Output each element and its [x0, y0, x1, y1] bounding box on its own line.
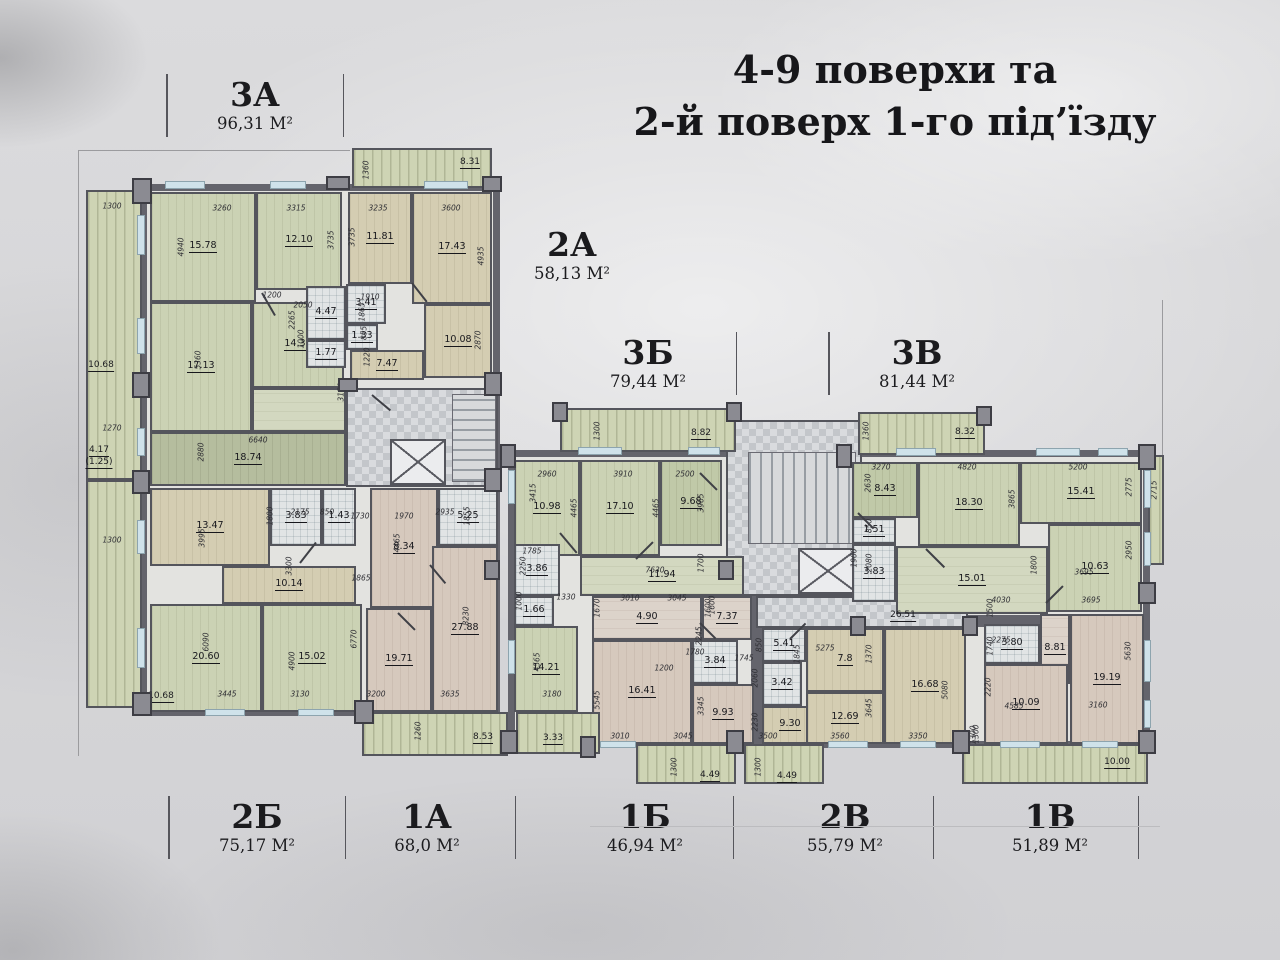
area-annotation: 10.00 — [1104, 757, 1130, 769]
area-annotation: 8.82 — [691, 428, 711, 440]
structural-column — [500, 730, 518, 754]
room: 16.41 — [592, 640, 692, 744]
dimension-label: 2220 — [984, 677, 993, 696]
structural-column — [850, 616, 866, 636]
structural-column — [726, 730, 744, 754]
dimension-label: 2870 — [474, 330, 483, 349]
area-annotation: 26.51 — [890, 610, 916, 622]
window — [508, 640, 515, 674]
dimension-label: 6770 — [350, 629, 359, 648]
area-annotation: 4.49 — [777, 771, 797, 783]
elevator-shaft-left — [390, 439, 446, 485]
dimension-label: 3315 — [286, 204, 305, 213]
dimension-label: 3300 — [285, 556, 294, 575]
dimension-label: 2950 — [1125, 540, 1134, 559]
dimension-label: 3965 — [697, 493, 706, 512]
window — [1098, 448, 1128, 456]
window — [688, 447, 720, 455]
dimension-label: 3695 — [1081, 596, 1100, 605]
dimension-label: 4900 — [288, 651, 297, 670]
dimension-label: 5545 — [593, 690, 602, 709]
dimension-label: 3445 — [217, 690, 236, 699]
room-area-label: 1.77 — [315, 348, 336, 360]
room-area-label: 3.84 — [704, 656, 725, 668]
dimension-label: 2775 — [1125, 477, 1134, 496]
dimension-label: 3260 — [212, 204, 231, 213]
dimension-label: 1740 — [986, 636, 995, 655]
dimension-label: 850 — [320, 508, 334, 517]
room-area-label: 8.81 — [1044, 643, 1065, 655]
dimension-label: 3415 — [529, 483, 538, 502]
dimension-label: 3600 — [441, 204, 460, 213]
structural-column — [552, 402, 568, 422]
bathroom: 3.83 — [270, 488, 322, 546]
dimension-label: 1845 — [793, 644, 802, 663]
floor-plan-photo: 4-9 поверхи та 2-й поверх 1-го під’їзду … — [0, 0, 1280, 960]
room: 15.78 — [150, 192, 256, 302]
dimension-label: 3910 — [613, 470, 632, 479]
room-area-label: 9.93 — [712, 708, 733, 720]
window — [896, 448, 936, 456]
room-area-label: 15.41 — [1067, 487, 1094, 499]
room-area-label: 4.90 — [636, 612, 657, 624]
dimension-label: 2500 — [675, 470, 694, 479]
room-area-label: 19.19 — [1093, 673, 1120, 685]
room-area-label: 10.14 — [275, 579, 302, 591]
dimension-label: 4565 — [533, 652, 542, 671]
structural-column — [484, 468, 502, 492]
structural-column — [482, 176, 502, 192]
dimension-label: 4465 — [652, 498, 661, 517]
area-annotation: 8.32 — [955, 427, 975, 439]
room: 19.19 — [1070, 614, 1144, 744]
dimension-label: 1865 — [351, 574, 370, 583]
dimension-label: 4940 — [177, 237, 186, 256]
window — [1000, 741, 1040, 748]
balcony — [86, 190, 142, 480]
bathroom: 3.83 — [852, 544, 896, 602]
structural-column — [836, 444, 852, 468]
room: 8.34 — [370, 488, 438, 608]
room-area-label: 19.71 — [385, 654, 412, 666]
dimension-label: 5200 — [1068, 463, 1087, 472]
dimension-label: 3045 — [667, 594, 686, 603]
dimension-label: 5275 — [815, 644, 834, 653]
window — [1036, 448, 1080, 456]
dimension-label: 8230 — [462, 606, 471, 625]
window — [205, 709, 245, 716]
structural-column — [338, 378, 358, 392]
window — [578, 447, 622, 455]
dimension-label: 2060 — [751, 668, 760, 687]
window — [508, 470, 515, 504]
window — [1144, 640, 1151, 682]
structural-column — [976, 406, 992, 426]
dimension-label: 1910 — [360, 293, 379, 302]
room — [252, 388, 346, 432]
room-area-label: 12.69 — [831, 712, 858, 724]
window — [298, 709, 334, 716]
dimension-label: 1700 — [697, 553, 706, 572]
window — [270, 181, 306, 189]
room-area-label: 9.30 — [779, 719, 800, 731]
dimension-label: 4585 — [1004, 702, 1023, 711]
dimension-label: 3130 — [290, 690, 309, 699]
dimension-label: 3010 — [620, 594, 639, 603]
dimension-label: 2880 — [197, 442, 206, 461]
room: 16.68 — [884, 628, 966, 744]
area-annotation: 4.49 — [700, 770, 720, 782]
structural-column — [952, 730, 970, 754]
dimension-label: 3180 — [542, 690, 561, 699]
structural-column — [718, 560, 734, 580]
dimension-label: 1300 — [754, 757, 763, 776]
structural-column — [326, 176, 350, 190]
structural-column — [132, 178, 152, 204]
room-area-label: 8.43 — [874, 484, 895, 496]
dimension-label: 1800 — [266, 506, 275, 525]
structural-column — [484, 560, 500, 580]
dimension-label: 4820 — [957, 463, 976, 472]
dimension-label: 3645 — [865, 698, 874, 717]
dimension-label: 3635 — [440, 690, 459, 699]
boundary-line — [78, 150, 350, 151]
bathroom: 3.42 — [762, 662, 802, 706]
room: 10.09 — [984, 664, 1068, 744]
dimension-label: 2960 — [537, 470, 556, 479]
dimension-label: 1300 — [670, 757, 679, 776]
dimension-label: 2630 — [864, 473, 873, 492]
dimension-label: 2250 — [519, 556, 528, 575]
area-annotation: 4.17 — [89, 445, 109, 457]
room: 15.02 — [262, 604, 362, 712]
dimension-label: 6090 — [202, 632, 211, 651]
dimension-label: 1300 — [102, 536, 121, 545]
dimension-label: 2265 — [288, 310, 297, 329]
balcony — [86, 480, 142, 708]
dimension-label: 3345 — [697, 696, 706, 715]
dimension-label: 1000 — [515, 591, 524, 610]
dimension-label: 1855 — [463, 506, 472, 525]
room-area-label: 4.47 — [315, 307, 336, 319]
dimension-label: 3735 — [348, 227, 357, 246]
dimension-label: 4465 — [393, 533, 402, 552]
dimension-label: 1200 — [654, 664, 673, 673]
room-area-label: 18.30 — [955, 498, 982, 510]
structural-column — [500, 444, 516, 468]
room-area-label: 17.10 — [606, 502, 633, 514]
dimension-label: 5630 — [1124, 641, 1133, 660]
window — [137, 520, 145, 554]
structural-column — [962, 616, 978, 636]
dimension-label: 855 — [360, 326, 369, 340]
dimension-label: 1600 — [708, 595, 717, 614]
dimension-label: 4465 — [570, 498, 579, 517]
room-area-label: 20.60 — [192, 652, 219, 664]
room-area-label: 7.8 — [837, 654, 852, 666]
dimension-label: 3695 — [1074, 568, 1093, 577]
dimension-label: 1000 — [297, 329, 306, 348]
room-area-label: 15.02 — [298, 652, 325, 664]
dimension-label: 1500 — [986, 598, 995, 617]
room-area-label: 1.66 — [523, 605, 544, 617]
dimension-label: 3500 — [758, 732, 777, 741]
dimension-label: 5360 — [194, 350, 203, 369]
bathroom: 4.47 — [306, 286, 346, 340]
dimension-label: 3995 — [198, 528, 207, 547]
room: 15.01 — [896, 546, 1048, 614]
dimension-label: 1800 — [1030, 555, 1039, 574]
dimension-label: 4935 — [477, 246, 486, 265]
room: 7.47 — [350, 350, 424, 380]
room-area-label: 11.81 — [366, 232, 393, 244]
room-area-label: 3.86 — [526, 564, 547, 576]
dimension-label: 2935 — [435, 508, 454, 517]
room: 13.47 — [150, 488, 270, 566]
window — [1144, 470, 1151, 508]
room-area-label: 15.78 — [189, 241, 216, 253]
area-annotation: 8.53 — [473, 732, 493, 744]
dimension-label: 3560 — [830, 732, 849, 741]
window — [137, 428, 145, 456]
area-annotation: 10.68 — [88, 360, 114, 372]
structural-column — [354, 700, 374, 724]
window — [1144, 532, 1151, 566]
dimension-label: 3350 — [908, 732, 927, 741]
room-area-label: 16.41 — [628, 686, 655, 698]
dimension-label: 1900 — [850, 548, 859, 567]
dimension-label: 1300 — [593, 421, 602, 440]
room-area-label: 17.43 — [438, 242, 465, 254]
dimension-label: 3735 — [327, 230, 336, 249]
dimension-label: 3865 — [1008, 489, 1017, 508]
structural-column — [1138, 444, 1156, 470]
paper-crease — [590, 826, 1160, 827]
dimension-label: 6640 — [248, 436, 267, 445]
bathroom: 1.51 — [852, 518, 896, 544]
dimension-label: 1670 — [593, 598, 602, 617]
room-area-label: 7.37 — [716, 612, 737, 624]
room: 4.90 — [592, 596, 702, 640]
structural-column — [484, 372, 502, 396]
dimension-label: 1270 — [102, 424, 121, 433]
room-area-label: 3.42 — [771, 678, 792, 690]
area-annotation: (1.25) — [85, 457, 112, 469]
dimension-label: 3200 — [366, 690, 385, 699]
room-area-label: 10.98 — [533, 502, 560, 514]
window — [900, 741, 936, 748]
dimension-label: 1260 — [414, 721, 423, 740]
room-area-label: 12.10 — [285, 235, 312, 247]
window — [600, 741, 636, 748]
room: 18.30 — [918, 462, 1020, 546]
window — [1082, 741, 1118, 748]
dimension-label: 1730 — [350, 512, 369, 521]
dimension-label: 1300 — [102, 202, 121, 211]
room-area-label: 16.68 — [911, 680, 938, 692]
dimension-label: 1780 — [685, 648, 704, 657]
structural-column — [726, 402, 742, 422]
dimension-label: 3045 — [673, 732, 692, 741]
area-annotation: 3.33 — [543, 733, 563, 745]
dimension-label: 2080 — [865, 553, 874, 572]
dimension-label: 2245 — [695, 626, 704, 645]
dimension-label: 1360 — [862, 421, 871, 440]
area-annotation: 8.31 — [460, 157, 480, 169]
structural-column — [580, 736, 596, 758]
bathroom: 1.77 — [306, 340, 346, 368]
room: 14.21 — [514, 626, 578, 712]
dimension-label: 3160 — [1088, 701, 1107, 710]
boundary-line — [78, 150, 79, 756]
window — [137, 318, 145, 354]
structural-column — [1138, 730, 1156, 754]
room-area-label: 10.08 — [444, 335, 471, 347]
room-area-label: 18.74 — [234, 453, 261, 465]
window — [424, 181, 468, 189]
dimension-label: 1745 — [734, 654, 753, 663]
dimension-label: 3235 — [368, 204, 387, 213]
dimension-label: 7630 — [645, 566, 664, 575]
dimension-label: 2230 — [751, 712, 760, 731]
balcony — [636, 744, 736, 784]
dimension-label: 1360 — [362, 160, 371, 179]
dimension-label: 2050 — [293, 301, 312, 310]
structural-column — [132, 692, 152, 716]
dimension-label: 3010 — [610, 732, 629, 741]
room-area-label: 7.47 — [376, 359, 397, 371]
window — [1144, 700, 1151, 728]
dimension-label: 1330 — [556, 593, 575, 602]
dimension-label: 1370 — [865, 644, 874, 663]
floor-plan-drawing: 15.7812.1017.1314.394.471.7718.7411.8117… — [0, 0, 1280, 960]
dimension-label: 2175 — [290, 508, 309, 517]
dimension-label: 3270 — [871, 463, 890, 472]
dimension-label: 1785 — [522, 547, 541, 556]
dimension-label: 1865 — [358, 302, 367, 321]
room-area-label: 5.41 — [773, 639, 794, 651]
structural-column — [132, 470, 150, 494]
window — [137, 628, 145, 668]
dimension-label: 5080 — [941, 680, 950, 699]
window — [137, 215, 145, 255]
structural-column — [132, 372, 150, 398]
window — [828, 741, 868, 748]
dimension-label: 1970 — [394, 512, 413, 521]
dimension-label: 1220 — [363, 347, 372, 366]
room-area-label: 15.01 — [958, 574, 985, 586]
dimension-label: 850 — [755, 638, 764, 652]
structural-column — [1138, 582, 1156, 604]
window — [165, 181, 205, 189]
